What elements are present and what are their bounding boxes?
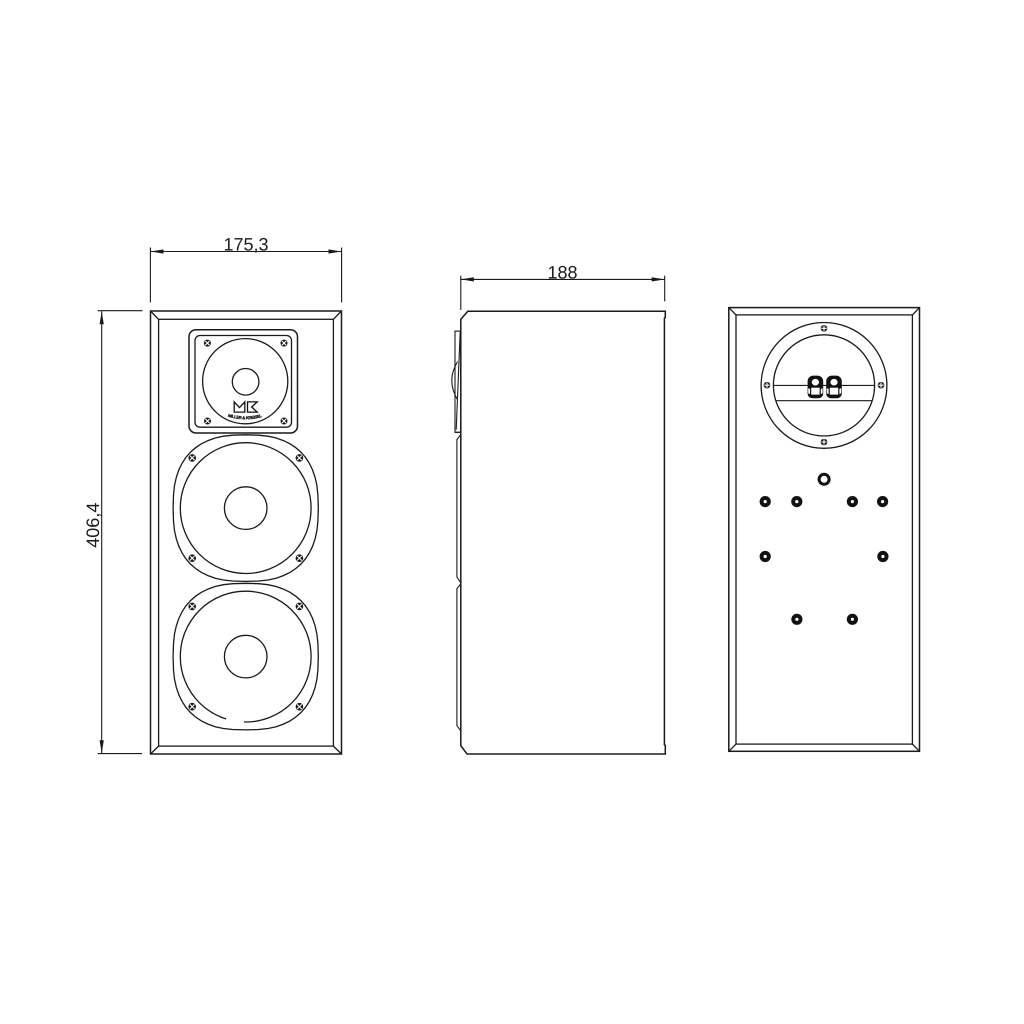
- svg-text:406,4: 406,4: [83, 503, 103, 548]
- svg-text:188: 188: [547, 262, 577, 282]
- svg-text:175,3: 175,3: [223, 235, 268, 255]
